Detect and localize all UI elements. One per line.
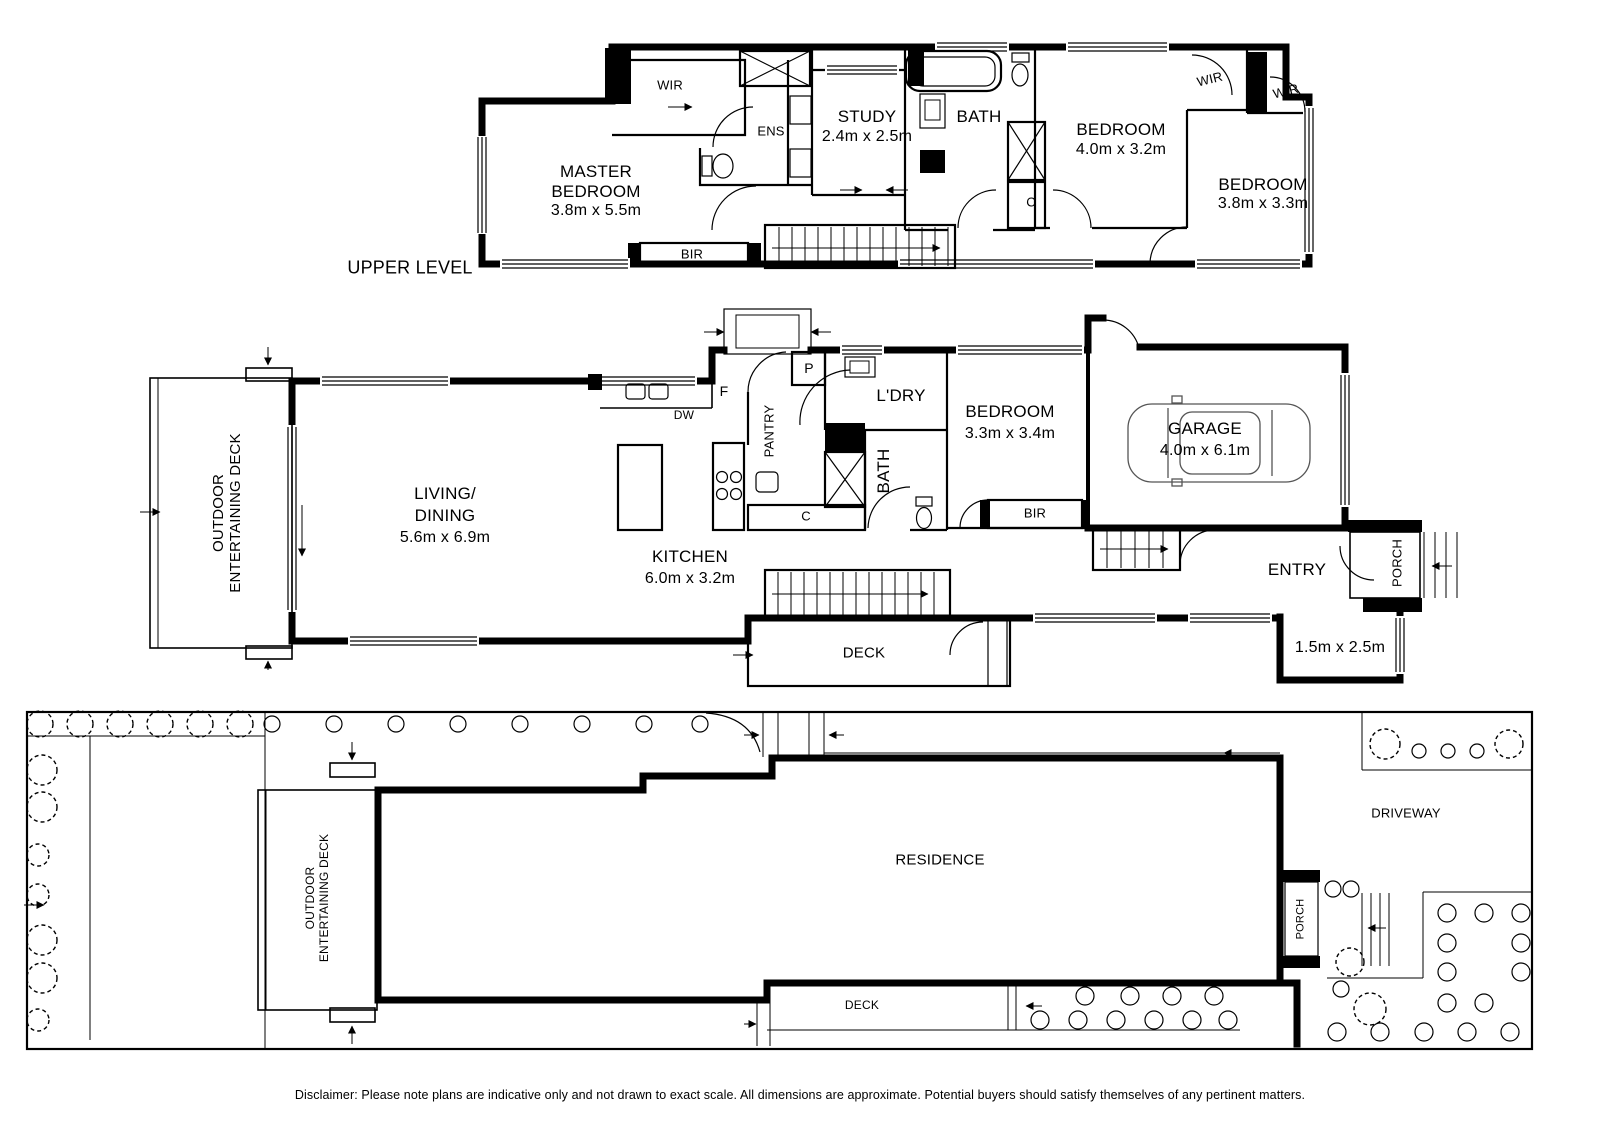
floorplan-page: UPPER LEVEL MASTER BEDROOM 3.8m x 5.5m W… (0, 0, 1600, 1131)
label-bir: BIR (1024, 507, 1046, 522)
label-outdoor-deck-line2: ENTERTAINING DECK (227, 433, 244, 593)
room-bath: BATH (874, 449, 894, 494)
room-bedroom-2: BEDROOM (1076, 120, 1165, 140)
upper-level-plan (476, 41, 1315, 270)
site-label-driveway: DRIVEWAY (1371, 807, 1441, 822)
label-ens: ENS (757, 125, 784, 140)
room-bath: BATH (957, 107, 1002, 127)
label-wir: WIR (657, 79, 683, 94)
label-dishwasher: DW (674, 409, 694, 423)
laundry-trough-icon (845, 357, 875, 377)
sink-icon (756, 472, 778, 492)
site-label-outdoor-deck: OUTDOOR ENTERTAINING DECK (304, 834, 332, 962)
toilet-icon (916, 497, 932, 529)
label-cupboard: C (1026, 196, 1036, 211)
room-entry: ENTRY (1268, 560, 1326, 580)
label-outdoor-deck: OUTDOOR ENTERTAINING DECK (210, 433, 245, 593)
site-label-porch: PORCH (1295, 899, 1308, 940)
site-label-residence: RESIDENCE (895, 851, 984, 868)
stairs-icon (1093, 528, 1180, 570)
label-cupboard: C (801, 510, 811, 525)
site-plan (24, 711, 1532, 1049)
vanity-icon (790, 149, 811, 177)
shower-icon (825, 452, 865, 507)
room-kitchen-dims: 6.0m x 3.2m (645, 570, 735, 588)
label-porch: PORCH (1391, 539, 1406, 587)
disclaimer-text: Disclaimer: Please note plans are indica… (295, 1088, 1305, 1102)
shower-icon (740, 51, 810, 86)
shower-icon (1008, 122, 1045, 180)
label-pantry: PANTRY (763, 405, 778, 458)
room-bedroom-3-dims: 3.8m x 3.3m (1218, 195, 1308, 213)
ground-level-plan (140, 309, 1457, 686)
room-study: STUDY (838, 107, 897, 127)
site-label-outdoor-deck-line2: ENTERTAINING DECK (318, 834, 332, 962)
label-bir: BIR (681, 248, 703, 263)
room-bedroom: BEDROOM (965, 402, 1054, 422)
room-laundry: L'DRY (876, 386, 925, 406)
room-study-dims: 2.4m x 2.5m (822, 128, 912, 146)
vanity-icon (920, 94, 945, 128)
courtyard-dims: 1.5m x 2.5m (1295, 639, 1385, 657)
room-bedroom-dims: 3.3m x 3.4m (965, 425, 1055, 443)
toilet-icon (702, 154, 733, 178)
door-arcs (748, 320, 1374, 655)
toilet-icon (1012, 53, 1029, 86)
room-master-bedroom: MASTER (560, 162, 632, 182)
label-outdoor-deck-line1: OUTDOOR (210, 433, 227, 593)
stairs-icon (765, 570, 950, 617)
cooktop-icon (713, 443, 744, 530)
site-label-deck: DECK (845, 999, 879, 1013)
room-garage-dims: 4.0m x 6.1m (1160, 442, 1250, 460)
room-master-bedroom: BEDROOM (551, 182, 640, 202)
kitchen-island (618, 445, 662, 530)
room-bedroom-2-dims: 4.0m x 3.2m (1076, 141, 1166, 159)
room-living: DINING (415, 506, 476, 526)
label-p-cupboard: P (804, 360, 814, 376)
vanity-icon (790, 96, 811, 124)
room-living: LIVING/ (414, 484, 476, 504)
upper-level-caption: UPPER LEVEL (347, 258, 472, 279)
room-living-dims: 5.6m x 6.9m (400, 529, 490, 547)
label-deck: DECK (843, 644, 885, 661)
room-bedroom-3: BEDROOM (1218, 175, 1307, 195)
room-master-bedroom-dims: 3.8m x 5.5m (551, 202, 641, 220)
rear-deck (767, 985, 1240, 1030)
site-label-outdoor-deck-line1: OUTDOOR (304, 834, 318, 962)
room-kitchen: KITCHEN (652, 547, 728, 567)
label-fridge: F (720, 383, 729, 399)
room-garage: GARAGE (1168, 419, 1242, 439)
